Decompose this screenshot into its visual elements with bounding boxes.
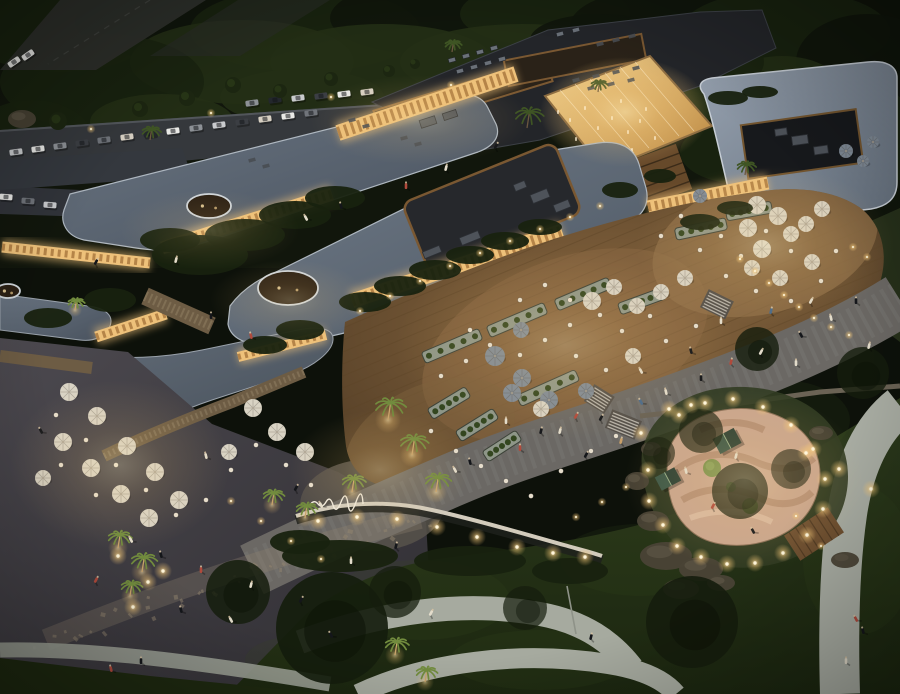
render-stage (0, 0, 900, 694)
vignette (0, 0, 900, 694)
aerial-night-render (0, 0, 900, 694)
